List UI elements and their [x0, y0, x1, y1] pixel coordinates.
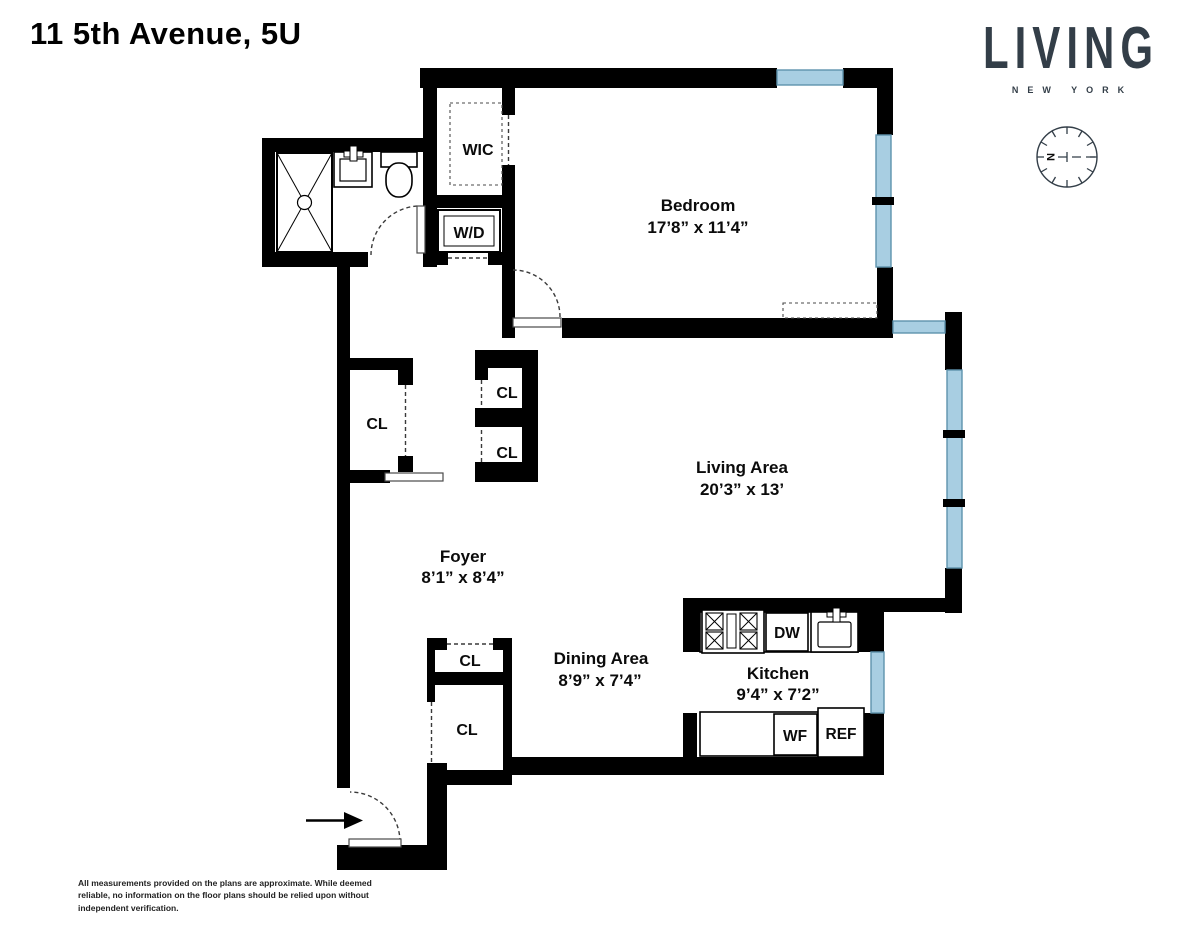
living-label: Living Area: [696, 458, 788, 477]
floorplan-page: { "header": { "title": "11 5th Avenue, 5…: [0, 0, 1200, 927]
floor-plan: Bedroom 17’8” x 11’4” Living Area 20’3” …: [0, 0, 1200, 927]
foyer-dims: 8’1” x 8’4”: [421, 568, 504, 587]
disclaimer-line: independent verification.: [78, 902, 372, 914]
dining-label: Dining Area: [554, 649, 649, 668]
stove: [702, 610, 764, 653]
disclaimer: All measurements provided on the plans a…: [78, 877, 372, 914]
window-mullion: [872, 197, 894, 205]
disclaimer-line: All measurements provided on the plans a…: [78, 877, 372, 889]
entry-door: [349, 839, 401, 847]
wic-label: WIC: [462, 142, 494, 159]
kitchen-sink: [811, 608, 858, 652]
wine-fridge-label: WF: [783, 728, 807, 745]
dishwasher-label: DW: [774, 625, 800, 642]
bedroom-window-top: [777, 70, 843, 85]
closet-label: CL: [456, 722, 478, 739]
toilet: [381, 152, 417, 197]
entry: [306, 792, 401, 847]
corner-window: [893, 321, 945, 333]
shower: [277, 153, 332, 252]
kitchen-label: Kitchen: [747, 664, 809, 683]
washer-dryer-label: W/D: [453, 225, 484, 242]
closet-label: CL: [496, 445, 518, 462]
kitchen-window-east: [871, 652, 884, 713]
ptac-unit: [783, 303, 877, 318]
living-window-east: [947, 370, 962, 568]
bedroom-dims: 17’8” x 11’4”: [647, 218, 748, 237]
bedroom-door: [513, 318, 561, 327]
kitchen-dims: 9’4” x 7’2”: [736, 685, 819, 704]
bathroom-door-arc: [371, 206, 420, 255]
refrigerator-label: REF: [826, 726, 857, 743]
window-mullion: [943, 499, 965, 507]
window-mullion: [943, 430, 965, 438]
compass-icon: N: [1037, 127, 1097, 187]
closet-label: CL: [459, 653, 481, 670]
dining-dims: 8’9” x 7’4”: [558, 671, 641, 690]
bathroom: [277, 146, 425, 255]
hall-sliding-door: [385, 473, 443, 481]
bedroom-label: Bedroom: [661, 196, 736, 215]
foyer-label: Foyer: [440, 547, 487, 566]
bedroom-door-arc: [513, 270, 560, 317]
closet-label: CL: [496, 385, 518, 402]
closet-label: CL: [366, 416, 388, 433]
entry-door-arc: [350, 792, 400, 842]
compass-north-label: N: [1044, 153, 1056, 161]
bathroom-sink: [334, 146, 372, 187]
entry-arrow-icon: [344, 812, 363, 829]
disclaimer-line: reliable, no information on the floor pl…: [78, 889, 372, 901]
living-dims: 20’3” x 13’: [700, 480, 784, 499]
bathroom-door: [417, 206, 425, 253]
